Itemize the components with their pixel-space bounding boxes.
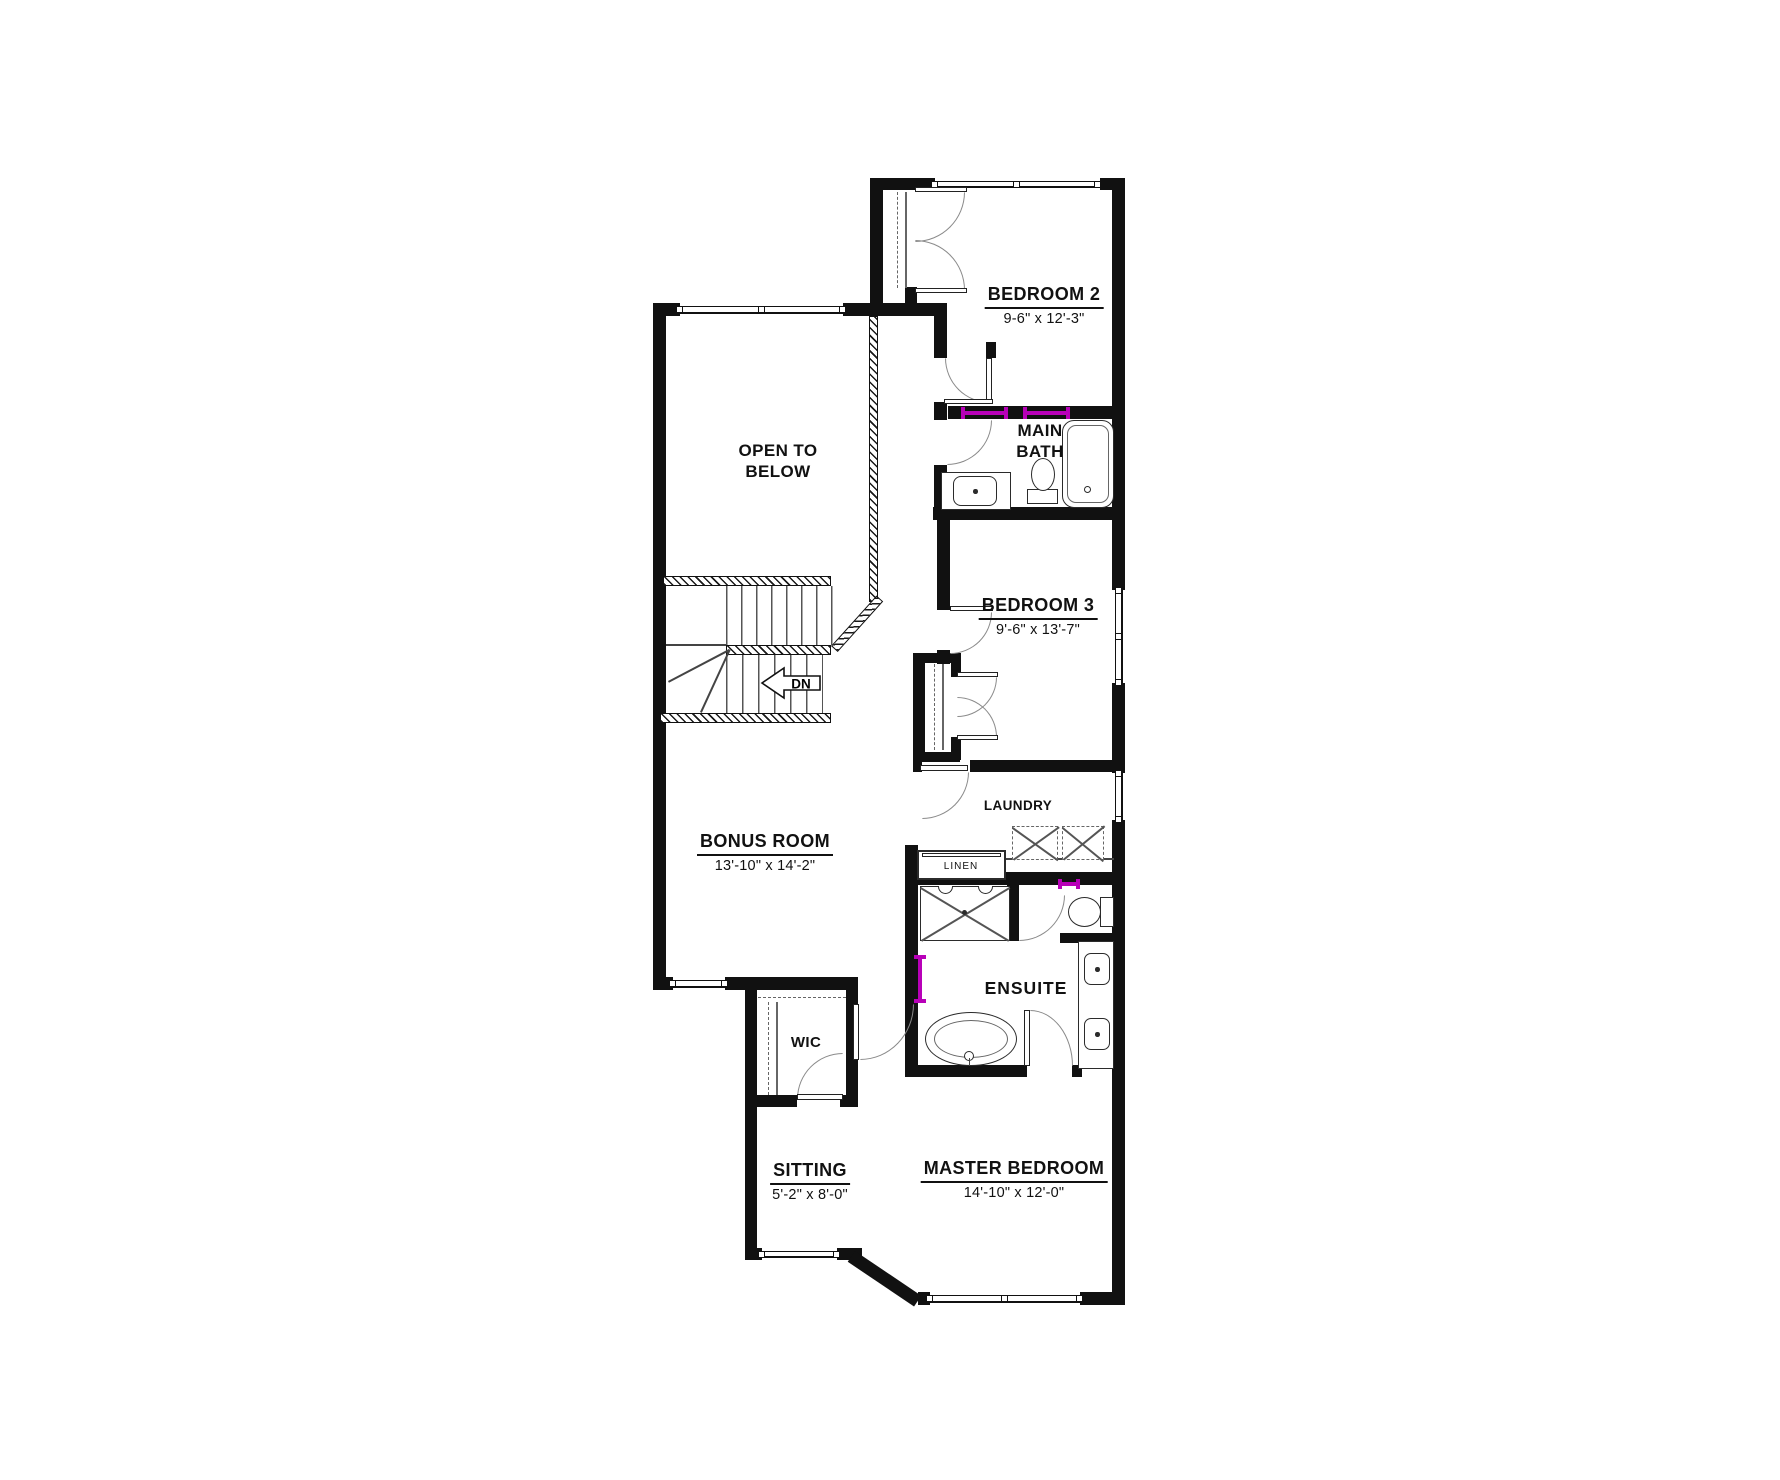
door-leaf	[944, 399, 993, 404]
shower-drain-icon	[962, 910, 967, 915]
tub-faucet-stub	[969, 1058, 971, 1066]
bonus-room-label: BONUS ROOM 13'-10" x 14'-2"	[697, 831, 833, 874]
closet-door-leaf	[957, 735, 998, 740]
room-dimensions: 13'-10" x 14'-2"	[697, 858, 833, 874]
window-marker	[758, 1251, 765, 1258]
window-marker	[1115, 633, 1122, 640]
window-marker	[721, 980, 728, 987]
closet-door-leaf	[957, 672, 998, 677]
room-title: SITTING	[770, 1160, 850, 1185]
stair-stringer-hatched	[660, 713, 831, 723]
door-arc	[797, 1053, 843, 1099]
wall	[934, 402, 947, 420]
stairs-down-arrow: DN	[758, 662, 824, 704]
room-title-line1: MAIN	[1016, 420, 1064, 441]
closet-rod-dashed	[934, 664, 935, 750]
closet-door-arc	[957, 697, 997, 737]
wall	[934, 303, 947, 358]
wall	[986, 342, 996, 358]
door-leaf	[920, 765, 968, 771]
room-title-line2: BATH	[1016, 441, 1064, 462]
linen-door-line	[922, 853, 1001, 857]
closet-rod-dashed	[897, 192, 898, 288]
bathtub-drain-icon	[1084, 486, 1091, 493]
door-arc	[1030, 1010, 1073, 1066]
stair-diagonal-hatched	[831, 595, 883, 652]
laundry-label: LAUNDRY	[984, 795, 1052, 816]
wall	[745, 1095, 797, 1107]
toilet-paper-holder-cap	[1058, 879, 1062, 889]
main-bath-label: MAIN BATH	[1016, 420, 1064, 462]
room-title: BONUS ROOM	[697, 831, 833, 856]
toilet-bowl-icon	[1031, 458, 1055, 491]
stair-landing-line	[666, 644, 726, 646]
sink-drain-icon	[973, 489, 978, 494]
room-dimensions: 5'-2" x 8'-0"	[770, 1187, 850, 1203]
open-to-below-label: OPEN TO BELOW	[738, 440, 817, 482]
closet-shelf-line	[905, 192, 907, 288]
room-dimensions: 14'-10" x 12'-0"	[921, 1185, 1108, 1201]
door-leaf	[797, 1094, 843, 1100]
ensuite-label: ENSUITE	[985, 978, 1068, 999]
bedroom2-label: BEDROOM 2 9-6" x 12'-3"	[985, 284, 1104, 327]
floor-plan: DN	[0, 0, 1780, 1480]
room-title: LAUNDRY	[984, 795, 1052, 816]
door-arc	[1019, 895, 1065, 941]
stair-treads-upper	[726, 586, 833, 645]
door-arc	[922, 772, 969, 819]
window	[762, 1248, 837, 1260]
window-marker	[1013, 181, 1020, 188]
wall-diagonal	[848, 1251, 922, 1307]
towel-bar-cap	[1004, 407, 1008, 419]
toilet-tank-icon	[1100, 897, 1114, 927]
window	[1112, 773, 1125, 820]
wic-label: WIC	[791, 1032, 821, 1053]
window-marker	[833, 1251, 840, 1258]
wall	[745, 977, 757, 1260]
wall	[937, 520, 950, 610]
sink-drain-icon	[1095, 1032, 1100, 1037]
closet-door-arc	[915, 192, 965, 242]
stair-rail-hatched	[663, 576, 831, 586]
door-leaf	[853, 1004, 859, 1060]
wall	[970, 760, 1125, 772]
closet-door-arc	[915, 240, 965, 290]
towel-bar-cap	[1066, 407, 1070, 419]
area-title-line2: BELOW	[738, 461, 817, 482]
wall	[1112, 178, 1125, 1305]
towel-bar-cap	[961, 407, 965, 419]
window-marker	[1115, 770, 1122, 777]
closet-title: LINEN	[944, 861, 978, 872]
toilet-tank-icon	[1027, 489, 1058, 504]
wall	[653, 303, 666, 990]
closet-door-leaf	[915, 288, 967, 293]
towel-bar-icon	[963, 411, 1006, 415]
window-marker	[1115, 816, 1122, 823]
room-title: BEDROOM 3	[979, 595, 1098, 620]
stairs-down-label: DN	[791, 677, 811, 692]
wall	[905, 1065, 1027, 1077]
master-bedroom-label: MASTER BEDROOM 14'-10" x 12'-0"	[921, 1158, 1108, 1201]
room-dimensions: 9-6" x 12'-3"	[985, 311, 1104, 327]
room-dimensions: 9'-6" x 13'-7"	[979, 622, 1098, 638]
window-marker	[758, 306, 765, 313]
window-marker	[676, 306, 683, 313]
window-marker	[1094, 181, 1101, 188]
window	[673, 977, 725, 990]
closet-door-leaf	[915, 187, 967, 192]
closet-shelf-line	[776, 1002, 778, 1095]
window-marker	[1115, 679, 1122, 686]
wall	[913, 653, 925, 760]
area-title-line1: OPEN TO	[738, 440, 817, 461]
door-arc	[947, 420, 992, 465]
toilet-bowl-icon	[1068, 897, 1101, 927]
toilet-paper-holder-cap	[1076, 879, 1080, 889]
stair-stringer-hatched	[726, 645, 831, 655]
towel-bar-cap	[1023, 407, 1027, 419]
window-marker	[1115, 587, 1122, 594]
closet-rod-dashed	[768, 1002, 769, 1095]
room-title: WIC	[791, 1032, 821, 1053]
sink-drain-icon	[1095, 967, 1100, 972]
towel-bar-icon	[918, 957, 922, 1001]
window-marker	[1001, 1295, 1008, 1302]
bedroom3-label: BEDROOM 3 9'-6" x 13'-7"	[979, 595, 1098, 638]
window-marker	[926, 1295, 933, 1302]
open-below-hatched-wall	[869, 316, 878, 602]
linen-label: LINEN	[944, 861, 978, 872]
closet-shelf-line	[942, 664, 944, 750]
door-leaf	[986, 358, 992, 402]
room-title: ENSUITE	[985, 978, 1068, 999]
closet-rod-dashed	[758, 997, 846, 998]
room-title: BEDROOM 2	[985, 284, 1104, 309]
door-arc	[945, 358, 990, 403]
wall	[870, 178, 883, 316]
room-title: MASTER BEDROOM	[921, 1158, 1108, 1183]
towel-bar-cap	[914, 999, 926, 1003]
window-marker	[839, 306, 846, 313]
door-leaf	[1024, 1010, 1030, 1066]
towel-bar-cap	[914, 955, 926, 959]
towel-bar-icon	[1025, 411, 1068, 415]
window-marker	[1076, 1295, 1083, 1302]
sitting-label: SITTING 5'-2" x 8'-0"	[770, 1160, 850, 1203]
window-marker	[669, 980, 676, 987]
